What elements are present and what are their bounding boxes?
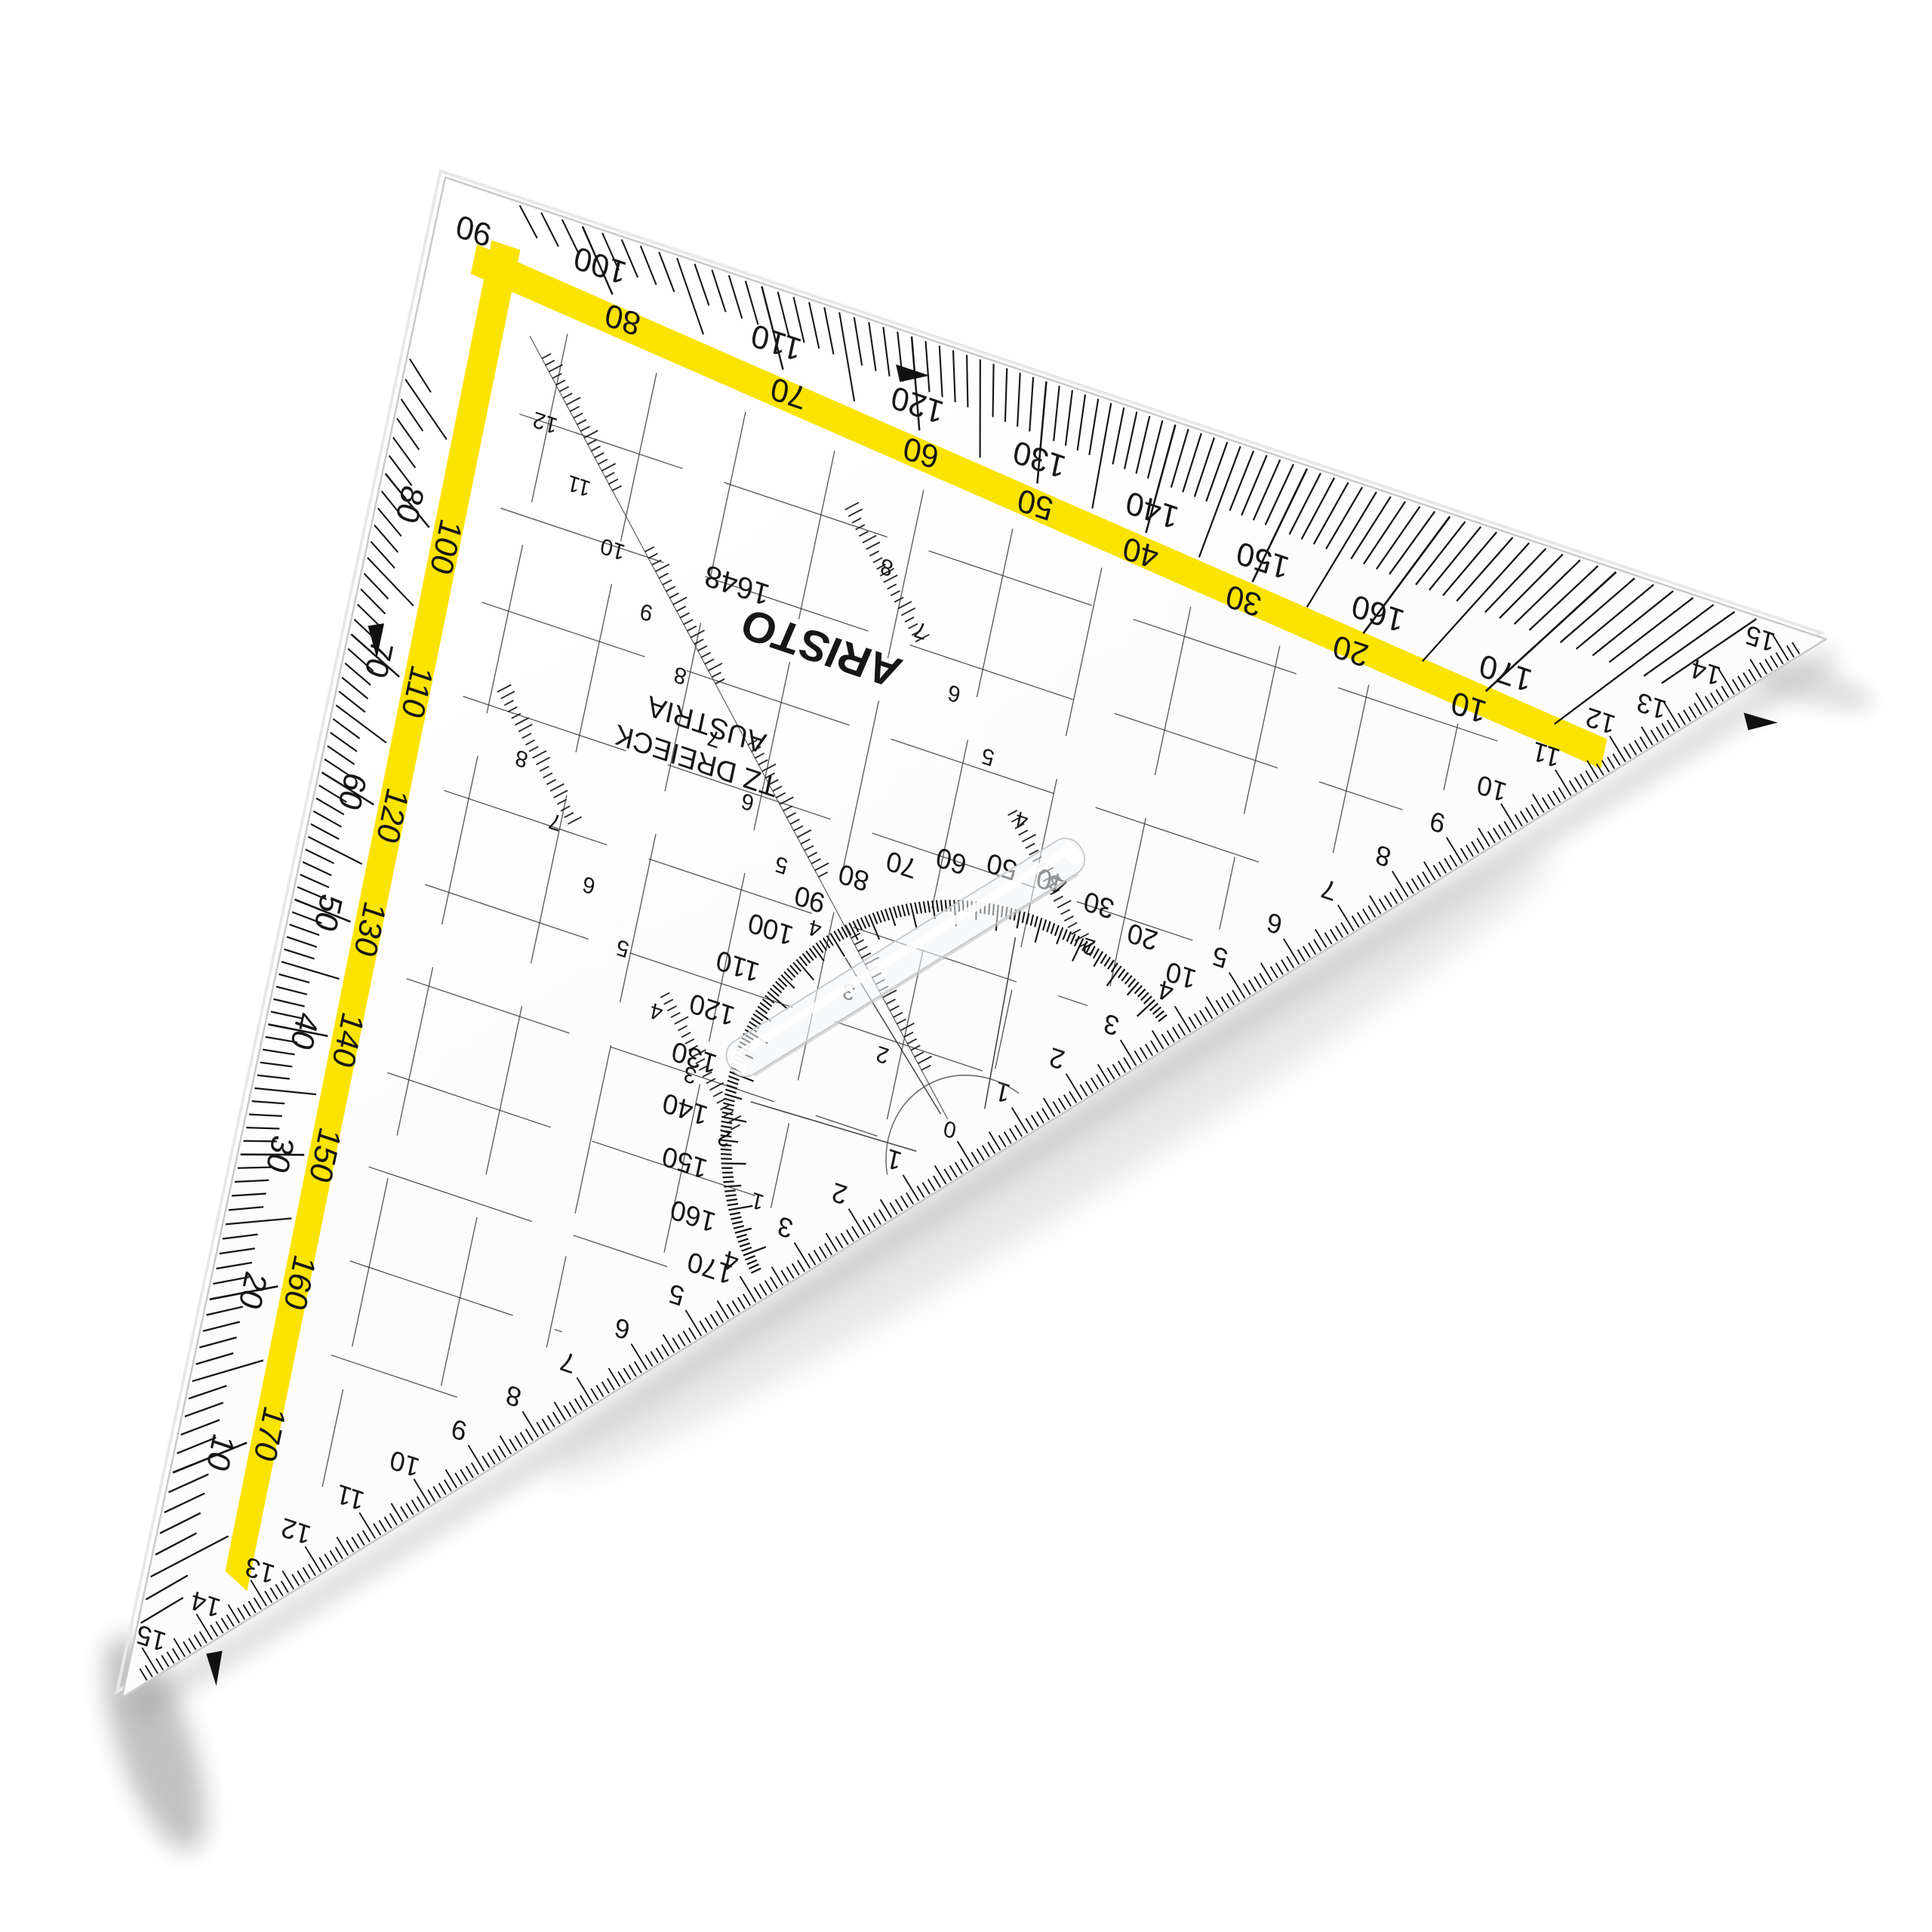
set-square-body: 2345678910111223456781234567801122334455… xyxy=(116,171,1827,1932)
set-square-illustration: 2345678910111223456781234567801122334455… xyxy=(0,0,1932,1932)
product-photo: 2345678910111223456781234567801122334455… xyxy=(0,0,1932,1932)
triangle-body xyxy=(116,171,1827,1932)
